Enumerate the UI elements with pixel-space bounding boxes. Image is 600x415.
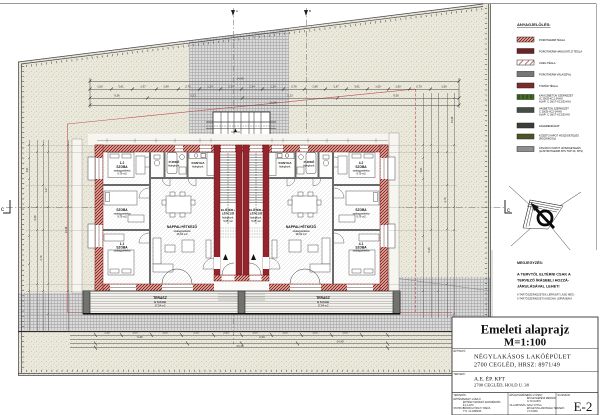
svg-text:NAPPALI+ÉTKEZŐ: NAPPALI+ÉTKEZŐ (167, 224, 198, 229)
svg-text:1,00: 1,00 (375, 85, 381, 89)
svg-text:POROTHERM VÁLASZFAL: POROTHERM VÁLASZFAL (539, 73, 572, 77)
svg-text:É 13-1179: É 13-1179 (463, 404, 474, 407)
svg-text:3,20: 3,20 (193, 331, 199, 335)
svg-text:9,79 m2: 9,79 m2 (117, 172, 127, 176)
svg-text:hidegburk.: hidegburk. (222, 216, 234, 220)
svg-text:JÁRULÁSÁVAL LEHET!: JÁRULÁSÁVAL LEHET! (517, 284, 560, 289)
svg-text:5,05 m2: 5,05 m2 (251, 219, 261, 223)
svg-text:A TERVTŐL ELTÉRNI CSAK A: A TERVTŐL ELTÉRNI CSAK A (517, 272, 571, 277)
svg-text:9,36: 9,36 (114, 93, 120, 97)
svg-text:Emeleti alaprajz: Emeleti alaprajz (481, 323, 570, 337)
svg-text:24,48: 24,48 (237, 344, 244, 348)
svg-text:17,54 m2: 17,54 m2 (318, 304, 329, 308)
svg-text:ÉPÜLETVILLAMOSSÁGI TERVEZŐ: ÉPÜLETVILLAMOSSÁGI TERVEZŐ (527, 407, 565, 410)
svg-text:TERASZ: TERASZ (316, 296, 330, 300)
svg-text:TERVEZŐ:: TERVEZŐ: (454, 373, 466, 376)
svg-text:5,23: 5,23 (287, 93, 293, 97)
svg-text:1,37: 1,37 (333, 85, 339, 89)
svg-text:FÜRDŐ: FÜRDŐ (304, 159, 315, 164)
svg-text:E-2: E-2 (574, 399, 593, 414)
svg-text:1,50: 1,50 (395, 85, 401, 89)
svg-text:2,76: 2,76 (443, 197, 447, 203)
svg-text:FAGERENDÁZAT: FAGERENDÁZAT (539, 124, 560, 128)
svg-text:3,00: 3,00 (312, 331, 318, 335)
svg-text:V 13-6330: V 13-6330 (527, 411, 538, 413)
svg-text:SZANYI LÁSZLÓ: SZANYI LÁSZLÓ (463, 398, 481, 401)
svg-text:hidegburk.: hidegburk. (279, 165, 291, 169)
svg-text:A: A (236, 9, 238, 13)
svg-text:ÉPÍTTETŐ:: ÉPÍTTETŐ: (454, 350, 467, 353)
svg-text:9,36: 9,36 (137, 335, 143, 339)
svg-text:c: c (1, 207, 4, 213)
svg-text:ÉPÜLETGÉPÉSZ MÉRNÖK: ÉPÜLETGÉPÉSZ MÉRNÖK (527, 397, 556, 400)
svg-text:3,00: 3,00 (282, 331, 288, 335)
svg-text:NÉGYLAKÁSOS LAKÓÉPÜLET: NÉGYLAKÁSOS LAKÓÉPÜLET (474, 353, 571, 361)
svg-text:(AUSTROTHERM XPS TOP 30, XPS): (AUSTROTHERM XPS TOP 30, XPS) (539, 149, 583, 153)
svg-text:2,80: 2,80 (223, 331, 229, 335)
svg-text:3,61: 3,61 (354, 85, 360, 89)
svg-text:9,36: 9,36 (427, 247, 431, 253)
svg-text:TÖRÖKGYÖRGYI TAMÁS: TÖRÖKGYÖRGYI TAMÁS (463, 407, 491, 410)
svg-text:5,23: 5,23 (190, 93, 196, 97)
svg-text:hidegburk.: hidegburk. (168, 164, 180, 168)
svg-text:9,79 m2: 9,79 m2 (356, 172, 366, 176)
svg-text:SZOBA: SZOBA (355, 165, 367, 169)
svg-text:2700 CEGLÉD, HRSZ: 8971/49: 2700 CEGLÉD, HRSZ: 8971/49 (474, 361, 560, 369)
svg-text:14,48: 14,48 (64, 226, 68, 233)
svg-text:(ROCKWOOL): (ROCKWOOL) (539, 137, 556, 141)
svg-text:2,76: 2,76 (39, 255, 43, 261)
svg-text:LÉPCSŐ: LÉPCSŐ (250, 211, 263, 216)
svg-text:9,36: 9,36 (393, 93, 399, 97)
svg-text:3,00: 3,00 (132, 331, 138, 335)
svg-text:NAGY ATTILA: NAGY ATTILA (527, 404, 542, 407)
svg-text:KONYHA: KONYHA (191, 161, 205, 165)
svg-text:2,34: 2,34 (228, 85, 234, 89)
svg-text:PÁLI GYÖRGY: PÁLI GYÖRGY (527, 394, 543, 397)
svg-text:26,04 m2: 26,04 m2 (177, 232, 188, 236)
svg-text:3,00: 3,00 (252, 331, 258, 335)
svg-text:14,48: 14,48 (237, 77, 244, 81)
svg-text:3,00: 3,00 (162, 331, 168, 335)
svg-text:2,34: 2,34 (249, 85, 255, 89)
svg-text:A.E. ÉP. KFT: A.E. ÉP. KFT (474, 375, 506, 383)
svg-text:ÉPÍTÉSZ TERVEZŐ SZAKMÉRNÖK: ÉPÍTÉSZ TERVEZŐ SZAKMÉRNÖK (463, 401, 501, 404)
svg-text:SZOBA: SZOBA (116, 208, 128, 212)
svg-text:TERVEZŐ ÍRÁSBELI HOZZÁ-: TERVEZŐ ÍRÁSBELI HOZZÁ- (517, 278, 570, 283)
svg-text:LÉPCSŐ: LÉPCSŐ (222, 211, 235, 216)
svg-text:G-T13-10679: G-T13-10679 (527, 401, 541, 403)
svg-text:5,05 m2: 5,05 m2 (223, 219, 233, 223)
svg-text:KONYHA: KONYHA (278, 161, 292, 165)
svg-text:TT1. 13-10589/06: TT1. 13-10589/06 (463, 411, 482, 413)
svg-text:14,48: 14,48 (337, 340, 344, 344)
svg-text:1,24: 1,24 (270, 85, 276, 89)
svg-text:9,79 m2: 9,79 m2 (356, 215, 366, 219)
svg-text:ALAP: C 16/17-XC1/32-KK: ALAP: C 16/17-XC1/32-KK (539, 113, 570, 117)
svg-text:ÉPÜLETGÉPÉSZ:: ÉPÜLETGÉPÉSZ: (510, 394, 529, 397)
svg-text:szalagparketta: szalagparketta (114, 249, 131, 253)
svg-text:1,50: 1,50 (104, 331, 110, 335)
svg-text:3,61: 3,61 (118, 85, 124, 89)
svg-text:VILLAMOSSÁG:: VILLAMOSSÁG: (510, 404, 527, 407)
svg-text:9,79 m2: 9,79 m2 (117, 215, 127, 219)
svg-text:1,37: 1,37 (44, 187, 48, 193)
svg-text:RAJZSZÁM:: RAJZSZÁM: (558, 394, 571, 397)
svg-text:TERASZ: TERASZ (153, 296, 167, 300)
svg-text:14,48: 14,48 (450, 116, 454, 123)
svg-text:1,00: 1,00 (97, 85, 103, 89)
svg-text:fa burkolat: fa burkolat (317, 300, 329, 304)
svg-text:hidegburk.: hidegburk. (250, 216, 262, 220)
svg-text:fa burkolat: fa burkolat (154, 300, 166, 304)
svg-text:B: B (309, 9, 311, 13)
svg-text:szalagparketta: szalagparketta (353, 249, 370, 253)
svg-text:3,00: 3,00 (342, 331, 348, 335)
svg-text:1,99: 1,99 (163, 85, 169, 89)
svg-text:MEGJEGYZÉS:: MEGJEGYZÉS: (517, 260, 543, 265)
svg-text:2,70: 2,70 (416, 85, 422, 89)
svg-text:c: c (507, 208, 510, 214)
svg-text:1,50: 1,50 (441, 85, 447, 89)
svg-text:9,36: 9,36 (33, 215, 37, 221)
svg-text:1,99: 1,99 (312, 85, 318, 89)
svg-text:1,37: 1,37 (140, 85, 146, 89)
svg-text:24,48: 24,48 (270, 101, 277, 105)
svg-text:1,24: 1,24 (207, 85, 213, 89)
svg-text:TERVEZŐK:: TERVEZŐK: (454, 394, 467, 397)
svg-text:M=1:100: M=1:100 (504, 337, 547, 349)
svg-text:17,54 m2: 17,54 m2 (155, 304, 166, 308)
svg-text:FÜRDŐ: FÜRDŐ (169, 159, 180, 164)
svg-text:3,61: 3,61 (419, 167, 423, 173)
svg-text:ALAP: C 16/17-XC1/32-KK): ALAP: C 16/17-XC1/32-KK) (539, 100, 571, 104)
svg-text:hidegburk.: hidegburk. (192, 165, 204, 169)
svg-text:NAPPALI+ÉTKEZŐ: NAPPALI+ÉTKEZŐ (286, 224, 317, 229)
svg-text:9,29: 9,29 (259, 335, 265, 339)
svg-text:2,76: 2,76 (185, 85, 191, 89)
svg-text:SZOBA: SZOBA (116, 165, 128, 169)
svg-text:3,61: 3,61 (25, 167, 29, 173)
svg-text:SZOBA: SZOBA (355, 208, 367, 212)
svg-text:26,04 m2: 26,04 m2 (296, 232, 307, 236)
svg-text:ANYAGJELÖLÉS:: ANYAGJELÖLÉS: (517, 22, 551, 27)
svg-text:hidegburk.: hidegburk. (303, 164, 315, 168)
svg-text:2,76: 2,76 (291, 85, 297, 89)
